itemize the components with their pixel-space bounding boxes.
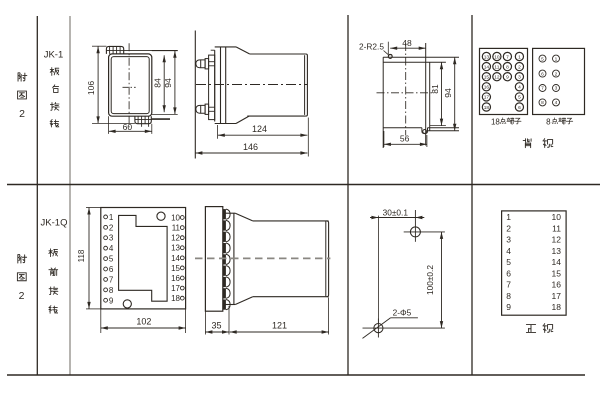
svg-text:94: 94 (163, 78, 173, 88)
svg-text:1: 1 (518, 54, 521, 60)
svg-text:16: 16 (484, 85, 490, 91)
svg-text:81: 81 (430, 84, 440, 94)
svg-text:4: 4 (518, 85, 521, 91)
svg-text:JK-1: JK-1 (44, 50, 64, 61)
svg-text:2: 2 (518, 64, 521, 70)
svg-text:2: 2 (555, 71, 558, 77)
svg-text:18: 18 (552, 302, 562, 312)
svg-text:15: 15 (484, 75, 490, 81)
svg-text:7: 7 (506, 54, 509, 60)
svg-text:10: 10 (171, 214, 180, 223)
svg-text:17: 17 (552, 291, 562, 301)
svg-text:2-R2.5: 2-R2.5 (359, 42, 384, 52)
svg-text:16: 16 (552, 280, 562, 290)
svg-text:5: 5 (506, 257, 511, 267)
svg-text:9: 9 (506, 302, 511, 312)
svg-text:10: 10 (494, 54, 500, 60)
svg-text:60: 60 (123, 122, 133, 132)
svg-text:3: 3 (555, 86, 558, 92)
svg-text:2-Φ5: 2-Φ5 (393, 308, 412, 318)
svg-text:4: 4 (506, 246, 511, 256)
svg-text:1: 1 (555, 56, 558, 62)
svg-text:9: 9 (506, 75, 509, 81)
svg-text:6: 6 (109, 265, 114, 274)
svg-text:5: 5 (109, 255, 114, 264)
svg-text:JK-1Q: JK-1Q (41, 218, 68, 229)
svg-text:12: 12 (171, 234, 180, 243)
svg-text:4: 4 (109, 244, 114, 253)
svg-text:6: 6 (541, 71, 544, 77)
svg-text:102: 102 (136, 316, 151, 326)
svg-text:13: 13 (171, 244, 180, 253)
svg-text:4: 4 (555, 100, 558, 106)
svg-text:146: 146 (243, 142, 258, 152)
svg-text:1: 1 (109, 213, 114, 222)
svg-text:6: 6 (506, 268, 511, 278)
svg-text:13: 13 (484, 54, 490, 60)
svg-text:2: 2 (19, 290, 25, 302)
svg-text:8: 8 (109, 286, 114, 295)
svg-text:2: 2 (109, 223, 114, 232)
svg-text:11: 11 (494, 64, 499, 70)
svg-text:17: 17 (484, 95, 490, 101)
svg-text:100±0.2: 100±0.2 (425, 265, 435, 295)
svg-text:5: 5 (541, 56, 544, 62)
svg-text:6: 6 (518, 105, 521, 111)
svg-text:8: 8 (546, 117, 551, 126)
svg-text:14: 14 (484, 64, 490, 70)
svg-text:56: 56 (400, 133, 410, 143)
svg-text:15: 15 (552, 268, 562, 278)
svg-text:16: 16 (171, 274, 180, 283)
svg-text:3: 3 (506, 235, 511, 245)
svg-text:8: 8 (506, 291, 511, 301)
svg-text:1: 1 (506, 212, 511, 222)
svg-text:7: 7 (109, 275, 114, 284)
svg-text:14: 14 (171, 254, 180, 263)
svg-text:9: 9 (109, 296, 114, 305)
svg-text:13: 13 (552, 246, 562, 256)
svg-text:11: 11 (172, 224, 181, 233)
svg-text:15: 15 (171, 264, 180, 273)
svg-text:5: 5 (518, 95, 521, 101)
svg-text:8: 8 (506, 64, 509, 70)
svg-text:3: 3 (109, 234, 114, 243)
svg-text:18: 18 (171, 294, 180, 303)
svg-text:121: 121 (272, 321, 287, 331)
svg-text:2: 2 (506, 223, 511, 233)
svg-text:10: 10 (552, 212, 562, 222)
svg-text:3: 3 (518, 75, 521, 81)
svg-text:35: 35 (211, 321, 221, 331)
svg-text:2: 2 (19, 108, 25, 120)
svg-text:12: 12 (552, 235, 562, 245)
svg-text:18: 18 (491, 117, 500, 126)
svg-text:17: 17 (171, 284, 180, 293)
svg-text:7: 7 (541, 86, 544, 92)
svg-text:84: 84 (153, 78, 163, 88)
svg-text:7: 7 (506, 280, 511, 290)
svg-text:106: 106 (86, 81, 96, 95)
svg-text:11: 11 (552, 223, 561, 233)
svg-text:12: 12 (494, 75, 500, 81)
svg-text:124: 124 (252, 124, 267, 134)
svg-text:8: 8 (541, 100, 544, 106)
svg-text:118: 118 (77, 249, 86, 262)
svg-text:48: 48 (402, 38, 412, 48)
svg-text:18: 18 (484, 105, 490, 111)
svg-text:94: 94 (443, 88, 453, 98)
svg-text:30±0.1: 30±0.1 (383, 207, 409, 217)
svg-text:14: 14 (552, 257, 562, 267)
